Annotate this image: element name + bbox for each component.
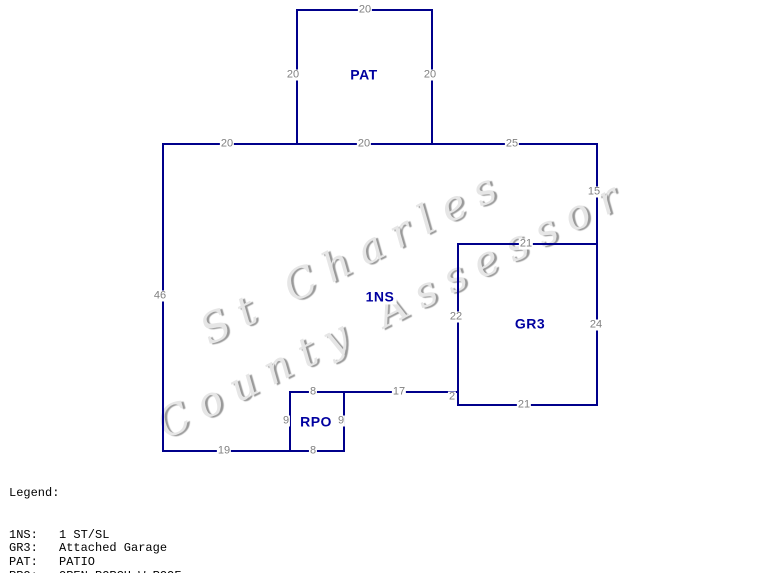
dimension-label: 21 xyxy=(517,400,531,411)
dimension-label: 20 xyxy=(220,139,234,150)
dimension-label: 19 xyxy=(217,446,231,457)
area-label-pat: PAT xyxy=(348,68,379,83)
legend-item-code: GR3: xyxy=(9,542,59,556)
dimension-label: 9 xyxy=(282,416,290,427)
dimension-label: 20 xyxy=(286,70,300,81)
dimension-label: 8 xyxy=(309,387,317,398)
dimension-label: 8 xyxy=(309,446,317,457)
legend-item-code: RPO: xyxy=(9,570,59,573)
dimension-label: 20 xyxy=(423,70,437,81)
legend: Legend: 1NS:1 ST/SLGR3:Attached GaragePA… xyxy=(9,460,246,573)
legend-items: 1NS:1 ST/SLGR3:Attached GaragePAT:PATIOR… xyxy=(9,529,246,573)
legend-title: Legend: xyxy=(9,487,246,501)
area-label-rpo: RPO xyxy=(298,415,334,430)
legend-item-code: PAT: xyxy=(9,556,59,570)
wall-line xyxy=(457,243,459,406)
legend-item-rpo: RPO:OPEN PORCH W ROOF xyxy=(9,570,246,573)
legend-item-description: PATIO xyxy=(59,555,95,569)
dimension-label: 46 xyxy=(153,291,167,302)
legend-item-code: 1NS: xyxy=(9,529,59,543)
dimension-label: 15 xyxy=(587,187,601,198)
assessor-sketch-page: St Charles County Assessor 2020202020251… xyxy=(0,0,762,573)
dimension-label: 25 xyxy=(505,139,519,150)
dimension-label: 21 xyxy=(519,239,533,250)
legend-item-description: OPEN PORCH W ROOF xyxy=(59,569,181,573)
legend-item-pat: PAT:PATIO xyxy=(9,556,246,570)
dimension-label: 20 xyxy=(358,5,372,16)
legend-item-gr3: GR3:Attached Garage xyxy=(9,542,246,556)
dimension-label: 24 xyxy=(589,320,603,331)
area-label-gr3: GR3 xyxy=(513,317,547,332)
legend-item-description: Attached Garage xyxy=(59,541,167,555)
legend-item-description: 1 ST/SL xyxy=(59,528,109,542)
area-label-1ns: 1NS xyxy=(364,290,397,305)
dimension-label: 2 xyxy=(448,392,456,403)
dimension-label: 17 xyxy=(392,387,406,398)
wall-line xyxy=(162,450,345,452)
dimension-label: 22 xyxy=(449,312,463,323)
dimension-label: 20 xyxy=(357,139,371,150)
legend-item-1ns: 1NS:1 ST/SL xyxy=(9,529,246,543)
dimension-label: 9 xyxy=(337,416,345,427)
